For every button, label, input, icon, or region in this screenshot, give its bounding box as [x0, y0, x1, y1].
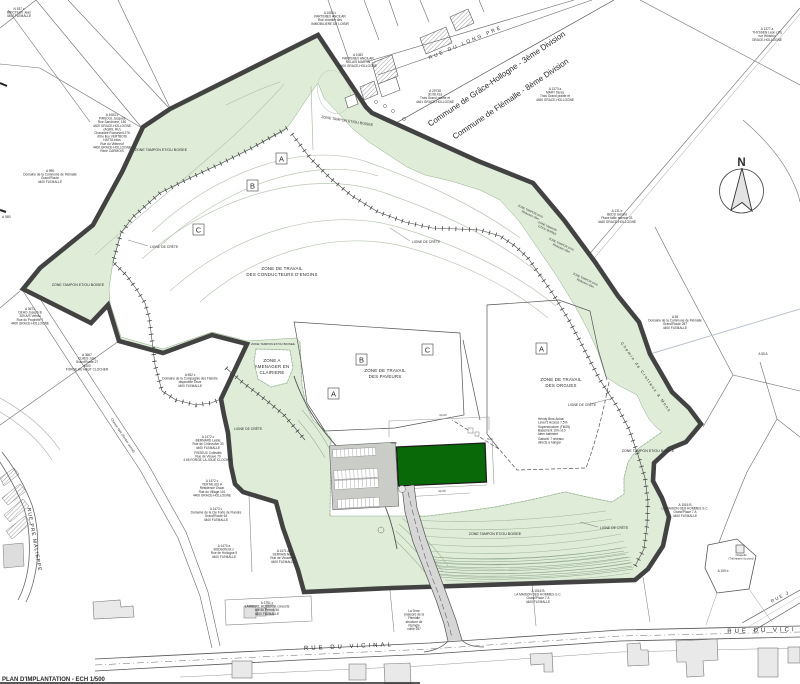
- svg-text:A 980: A 980: [2, 215, 11, 219]
- svg-text:55.00: 55.00: [439, 413, 447, 417]
- svg-text:ZONE TAMPON ET/OU BOISEE: ZONE TAMPON ET/OU BOISEE: [251, 342, 295, 346]
- svg-text:5.00: 5.00: [391, 441, 397, 445]
- svg-text:4400 FLEMALLE: 4400 FLEMALLE: [663, 326, 687, 330]
- svg-text:4400 FLEMALLE: 4400 FLEMALLE: [255, 612, 279, 616]
- svg-text:FORGE AU HAUT CLOCHER: FORGE AU HAUT CLOCHER: [66, 367, 109, 371]
- svg-text:LIGNE DE CRÊTE: LIGNE DE CRÊTE: [412, 239, 441, 244]
- svg-text:CLAIRIERE: CLAIRIERE: [260, 370, 285, 375]
- svg-text:4400 FLEMALLE: 4400 FLEMALLE: [212, 555, 236, 559]
- svg-text:C: C: [425, 346, 431, 355]
- svg-text:DES ORGUES: DES ORGUES: [545, 383, 576, 388]
- svg-text:idem batiment: idem batiment: [538, 432, 558, 436]
- svg-text:B: B: [250, 182, 255, 191]
- svg-text:4400 FLEMALLE: 4400 FLEMALLE: [204, 518, 228, 522]
- svg-text:(Trifontaine du pont): (Trifontaine du pont): [728, 556, 753, 560]
- svg-text:DES PAVEURS: DES PAVEURS: [369, 374, 402, 379]
- svg-text:4400 FLEMALLE: 4400 FLEMALLE: [38, 180, 62, 184]
- svg-text:voirie 257: voirie 257: [407, 627, 421, 631]
- svg-text:LIGNE DE CRÊTE: LIGNE DE CRÊTE: [600, 525, 629, 530]
- svg-text:LIGNE DE CRÊTE: LIGNE DE CRÊTE: [234, 426, 263, 431]
- svg-text:René CARMOIS: René CARMOIS: [100, 149, 123, 153]
- svg-text:B: B: [359, 356, 364, 365]
- svg-text:4400 FLEMALLE: 4400 FLEMALLE: [271, 560, 295, 564]
- svg-text:A 150 b: A 150 b: [718, 569, 729, 573]
- svg-text:4400 FLEMALLE: 4400 FLEMALLE: [7, 14, 31, 18]
- svg-text:directs à hangar: directs à hangar: [538, 441, 562, 445]
- svg-text:Level 5 Access 7,5%: Level 5 Access 7,5%: [538, 421, 568, 425]
- svg-text:4400 FLEMALLE: 4400 FLEMALLE: [673, 514, 697, 518]
- svg-text:A: A: [539, 345, 544, 354]
- svg-text:4400 GRACE-HOLLOGNE: 4400 GRACE-HOLLOGNE: [11, 321, 49, 325]
- svg-text:AMENAGER EN: AMENAGER EN: [255, 364, 290, 369]
- svg-text:IMMOBILIERE DE LOISIR: IMMOBILIERE DE LOISIR: [311, 22, 349, 26]
- svg-text:ZONE DE TRAVAIL: ZONE DE TRAVAIL: [364, 368, 406, 373]
- svg-text:ZONE TAMPON ET/OU BOISEE: ZONE TAMPON ET/OU BOISEE: [52, 283, 105, 287]
- svg-text:4400 FLEMALLE: 4400 FLEMALLE: [178, 384, 202, 388]
- svg-text:4460 GRACE-HOLLOGNE: 4460 GRACE-HOLLOGNE: [536, 98, 574, 102]
- svg-text:4 65 FORGE LA JOLIE CLOCHER: 4 65 FORGE LA JOLIE CLOCHER: [183, 458, 233, 462]
- svg-text:5.00: 5.00: [487, 437, 493, 441]
- svg-text:ZONE DE TRAVAIL: ZONE DE TRAVAIL: [540, 377, 582, 382]
- svg-text:A: A: [279, 155, 284, 164]
- svg-text:ZONE TAMPON ET/OU BOISEE: ZONE TAMPON ET/OU BOISEE: [469, 532, 522, 536]
- svg-text:ZONE TAMPON ET/OU BOISEE: ZONE TAMPON ET/OU BOISEE: [622, 449, 675, 453]
- svg-text:N: N: [737, 157, 745, 169]
- svg-text:GRACE-HOLLOGNE: GRACE-HOLLOGNE: [752, 38, 782, 42]
- svg-text:ZONE TAMPON ET/OU BOISEE: ZONE TAMPON ET/OU BOISEE: [135, 148, 188, 152]
- svg-text:4400 GRACE-HOLLOGNE: 4400 GRACE-HOLLOGNE: [193, 493, 231, 497]
- svg-text:4460 GRACE-HOLLOGNE: 4460 GRACE-HOLLOGNE: [598, 220, 636, 224]
- svg-text:A 55 A: A 55 A: [758, 352, 768, 356]
- svg-text:55.00: 55.00: [438, 489, 446, 493]
- svg-text:A: A: [331, 390, 336, 399]
- svg-text:C: C: [196, 226, 202, 235]
- svg-text:4400 FLEMALLE: 4400 FLEMALLE: [526, 600, 550, 604]
- svg-text:4461 GRACE-HOLLOGNE: 4461 GRACE-HOLLOGNE: [416, 100, 454, 104]
- svg-text:4400 FLEMALLE: 4400 FLEMALLE: [196, 446, 220, 450]
- svg-text:DES CONDUCTEURS D'ENGINS: DES CONDUCTEURS D'ENGINS: [246, 272, 317, 277]
- svg-text:ZONE DE TRAVAIL: ZONE DE TRAVAIL: [261, 266, 303, 271]
- svg-text:PLAN D'IMPLANTATION - ECH 1/50: PLAN D'IMPLANTATION - ECH 1/500: [2, 677, 106, 683]
- svg-text:4400 GRACE-HOLLOGNE: 4400 GRACE-HOLLOGNE: [339, 64, 377, 68]
- svg-text:ZONE A: ZONE A: [263, 358, 280, 363]
- svg-text:LIGNE DE CRÊTE: LIGNE DE CRÊTE: [150, 244, 179, 249]
- svg-text:LIGNE DE CRÊTE: LIGNE DE CRÊTE: [568, 402, 597, 407]
